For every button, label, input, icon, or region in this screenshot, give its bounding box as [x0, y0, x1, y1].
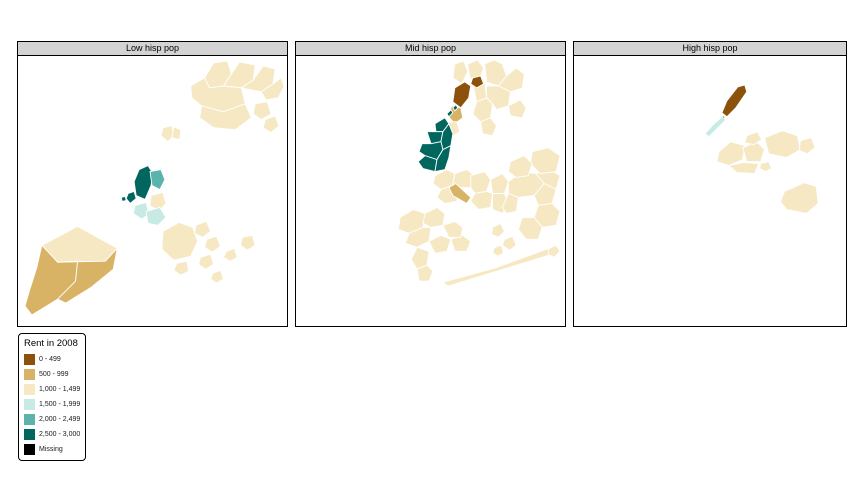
facet-panel-mid-hisp: Mid hisp pop: [295, 41, 566, 327]
map-region: [493, 245, 504, 256]
facet-panel-low-hisp: Low hisp pop: [17, 41, 288, 327]
map-region: [530, 148, 560, 174]
legend-item-label: 1,500 - 1,999: [39, 401, 80, 408]
map-region: [429, 235, 451, 253]
legend-item: 2,500 - 3,000: [24, 429, 80, 440]
map-region: [729, 163, 759, 174]
facet-strip: Mid hisp pop: [295, 41, 566, 56]
map-region: [150, 170, 165, 190]
map-region: [799, 138, 815, 154]
map-region: [765, 131, 801, 158]
facet-strip-label: Low hisp pop: [126, 44, 179, 53]
map-region: [253, 102, 271, 120]
legend-item: 1,000 - 1,499: [24, 384, 80, 395]
choropleth-map-mid: [296, 56, 565, 326]
map-region: [502, 236, 516, 250]
map-region: [195, 221, 211, 237]
legend: Rent in 2008 0 - 499500 - 9991,000 - 1,4…: [18, 333, 86, 461]
map-region: [453, 61, 468, 84]
map-region: [121, 196, 126, 201]
legend-items: 0 - 499500 - 9991,000 - 1,4991,500 - 1,9…: [24, 354, 80, 455]
map-region: [717, 142, 745, 166]
legend-swatch: [24, 354, 35, 365]
map-panel-body: [295, 56, 566, 327]
map-region: [471, 172, 491, 194]
map-region: [146, 207, 166, 225]
map-region: [205, 236, 221, 252]
map-region: [722, 85, 747, 117]
legend-item-label: 500 - 999: [39, 371, 69, 378]
map-region: [423, 207, 445, 227]
legend-swatch: [24, 369, 35, 380]
map-region: [508, 100, 526, 118]
map-panel-body: [573, 56, 847, 327]
map-region: [548, 245, 560, 257]
map-region: [508, 156, 532, 178]
legend-title: Rent in 2008: [24, 338, 80, 349]
legend-item: Missing: [24, 444, 80, 455]
choropleth-map-high: [574, 56, 846, 326]
legend-item-label: 2,500 - 3,000: [39, 431, 80, 438]
map-region: [745, 132, 762, 145]
map-region: [453, 82, 471, 108]
legend-swatch: [24, 399, 35, 410]
legend-swatch: [24, 384, 35, 395]
facet-strip: Low hisp pop: [17, 41, 288, 56]
map-region: [491, 174, 509, 194]
map-region: [162, 222, 198, 260]
legend-item: 1,500 - 1,999: [24, 399, 80, 410]
map-panel-body: [17, 56, 288, 327]
legend-item-label: 0 - 499: [39, 356, 61, 363]
map-region: [471, 191, 493, 209]
legend-item-label: Missing: [39, 446, 63, 453]
legend-item: 2,000 - 2,499: [24, 414, 80, 425]
map-region: [780, 183, 818, 214]
map-region: [174, 261, 189, 275]
map-region: [211, 270, 224, 283]
map-region: [481, 118, 497, 136]
facet-strip-label: High hisp pop: [682, 44, 737, 53]
legend-item-label: 1,000 - 1,499: [39, 386, 80, 393]
facet-strip: High hisp pop: [573, 41, 847, 56]
map-region: [240, 235, 255, 250]
legend-swatch: [24, 414, 35, 425]
faceted-choropleth-figure: Low hisp pop Mid hisp pop High hisp pop …: [0, 0, 864, 504]
map-region: [760, 162, 772, 172]
legend-item-label: 2,000 - 2,499: [39, 416, 80, 423]
map-region: [199, 254, 214, 269]
legend-swatch: [24, 429, 35, 440]
map-region: [134, 166, 153, 200]
map-region: [223, 248, 237, 261]
legend-item: 0 - 499: [24, 354, 80, 365]
legend-swatch: [24, 444, 35, 455]
map-region: [492, 223, 505, 237]
map-region: [172, 127, 181, 140]
map-region: [161, 126, 174, 142]
facet-strip-label: Mid hisp pop: [405, 44, 456, 53]
map-region: [443, 221, 463, 237]
legend-item: 500 - 999: [24, 369, 80, 380]
choropleth-map-low: [18, 56, 287, 326]
map-region: [263, 116, 279, 133]
map-region: [126, 191, 136, 203]
facet-panel-high-hisp: High hisp pop: [573, 41, 847, 327]
map-region: [705, 117, 726, 137]
